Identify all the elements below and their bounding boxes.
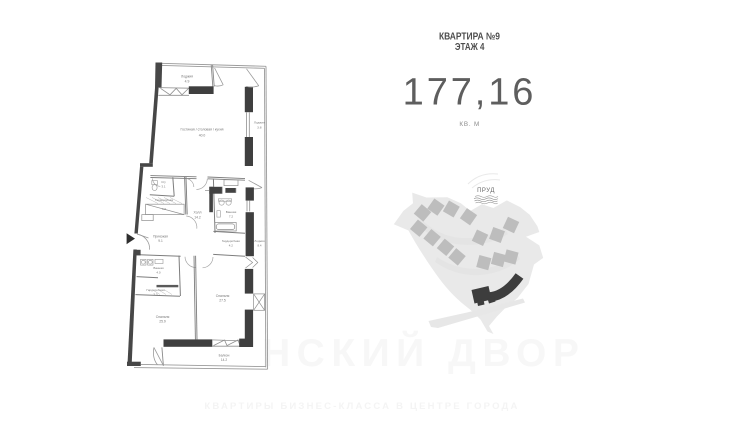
svg-text:25.9: 25.9 — [159, 320, 166, 324]
svg-text:Гардеробная: Гардеробная — [222, 239, 241, 243]
svg-text:НСКИЙ ДВОР: НСКИЙ ДВОР — [262, 330, 585, 375]
svg-text:Гардеробная: Гардеробная — [155, 198, 174, 202]
svg-text:3.8: 3.8 — [257, 125, 262, 129]
svg-text:С/у: С/у — [161, 180, 166, 184]
svg-text:Спальня: Спальня — [216, 294, 230, 298]
svg-text:14.2: 14.2 — [194, 216, 201, 220]
svg-text:8.4: 8.4 — [257, 244, 261, 248]
svg-text:Ванная: Ванная — [153, 266, 164, 270]
svg-text:КВ. М: КВ. М — [459, 121, 480, 128]
svg-text:4.0: 4.0 — [162, 207, 167, 211]
svg-text:3.1: 3.1 — [161, 185, 166, 189]
svg-text:ПРУД: ПРУД — [477, 188, 495, 194]
svg-text:Гостиная / столовая / кухня: Гостиная / столовая / кухня — [181, 128, 224, 132]
svg-text:Лоджия: Лоджия — [254, 121, 265, 125]
svg-text:Лоджия: Лоджия — [181, 75, 193, 79]
svg-text:Балкон: Балкон — [219, 353, 230, 357]
svg-text:4.9: 4.9 — [185, 80, 190, 84]
svg-text:27.5: 27.5 — [219, 299, 226, 303]
svg-text:4.0: 4.0 — [156, 271, 161, 275]
svg-text:ЭТАЖ 4: ЭТАЖ 4 — [455, 42, 485, 53]
svg-text:177,16: 177,16 — [403, 71, 537, 113]
svg-text:Спальня: Спальня — [156, 315, 170, 319]
svg-text:4.2: 4.2 — [229, 243, 234, 247]
svg-text:Ванная: Ванная — [226, 210, 237, 214]
svg-text:14.2: 14.2 — [221, 358, 227, 362]
svg-text:3.3: 3.3 — [153, 293, 158, 297]
svg-text:Холл: Холл — [194, 211, 202, 215]
svg-text:КВАРТИРА №9: КВАРТИРА №9 — [439, 32, 500, 43]
svg-text:40.0: 40.0 — [199, 134, 206, 138]
svg-text:Лоджия: Лоджия — [254, 239, 265, 243]
svg-text:7.2: 7.2 — [229, 214, 234, 218]
svg-text:9.1: 9.1 — [158, 239, 163, 243]
svg-text:Прихожая: Прихожая — [153, 235, 168, 239]
svg-text:КВАРТИРЫ БИЗНЕС-КЛАССА В ЦЕНТР: КВАРТИРЫ БИЗНЕС-КЛАССА В ЦЕНТРЕ ГОРОДА — [204, 401, 519, 412]
